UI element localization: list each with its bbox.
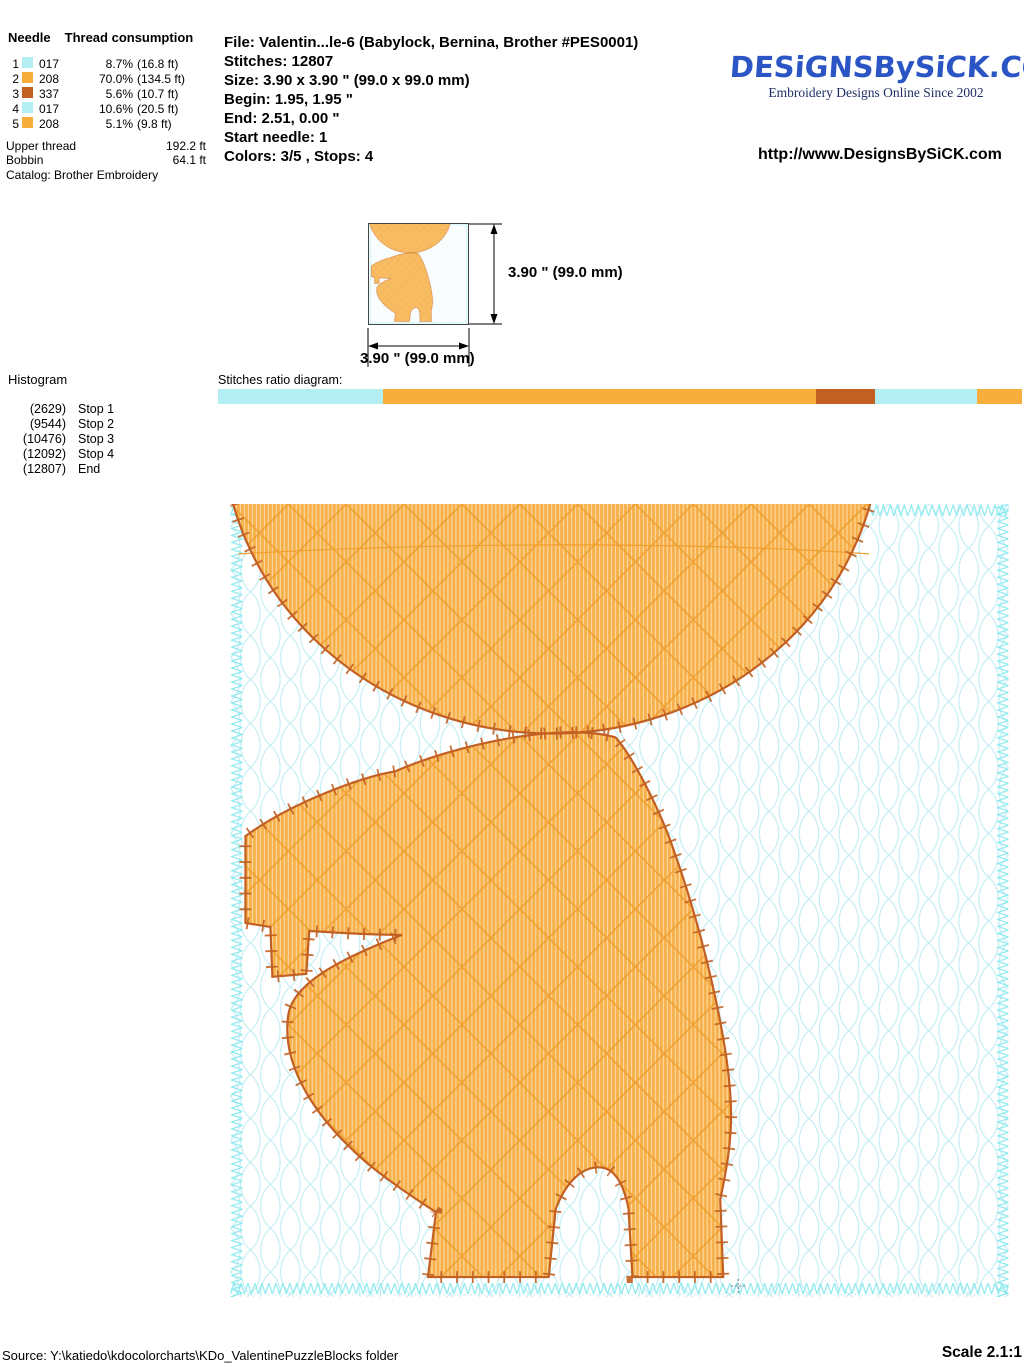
- stitch-count: (12807): [8, 462, 66, 476]
- thread-percent: 70.0%: [75, 72, 137, 86]
- thread-code: 208: [39, 117, 75, 131]
- design-thumbnail-art: [369, 224, 468, 324]
- ratio-segment: [218, 389, 383, 404]
- histogram-entry: (2629) Stop 1: [8, 401, 114, 416]
- histogram-entry: (9544) Stop 2: [8, 416, 114, 431]
- stitch-count: (9544): [8, 417, 66, 431]
- thread-color-swatch: [22, 117, 33, 128]
- stop-label: Stop 1: [78, 402, 114, 416]
- ratio-segment: [875, 389, 977, 404]
- thread-code: 017: [39, 57, 75, 71]
- brand-tagline: Embroidery Designs Online Since 2002: [730, 85, 1022, 101]
- file-info-block: File: Valentin...le-6 (Babylock, Bernina…: [224, 33, 638, 166]
- stitches-ratio-label: Stitches ratio diagram:: [218, 373, 342, 387]
- ratio-segment: [383, 389, 816, 404]
- thread-color-swatch: [22, 102, 33, 113]
- needle-number: 4: [6, 102, 22, 116]
- begin-line: Begin: 1.95, 1.95 ": [224, 90, 638, 109]
- thread-percent: 5.1%: [75, 117, 137, 131]
- file-name-line: File: Valentin...le-6 (Babylock, Bernina…: [224, 33, 638, 52]
- thread-row: 3 337 5.6% (10.7 ft): [6, 86, 220, 101]
- needle-column-header: Needle: [8, 30, 51, 45]
- histogram-entry: (10476) Stop 3: [8, 431, 114, 446]
- scale-indicator: Scale 2.1:1: [942, 1344, 1022, 1362]
- stitch-count: (10476): [8, 432, 66, 446]
- upper-thread-value: 192.2 ft: [166, 139, 206, 153]
- brand-url: http://www.DesignsBySiCK.com: [758, 146, 1002, 164]
- thread-row: 2 208 70.0% (134.5 ft): [6, 71, 220, 86]
- histogram-list: (2629) Stop 1 (9544) Stop 2 (10476) Stop…: [8, 401, 114, 476]
- source-path: Source: Y:\katiedo\kdocolorcharts\KDo_Va…: [2, 1348, 398, 1363]
- bobbin-label: Bobbin: [6, 153, 43, 167]
- stitch-count: (2629): [8, 402, 66, 416]
- stop-label: End: [78, 462, 100, 476]
- thread-length: (9.8 ft): [137, 117, 220, 131]
- catalog-line: Catalog: Brother Embroidery: [6, 168, 220, 182]
- upper-thread-label: Upper thread: [6, 139, 76, 153]
- colors-stops-line: Colors: 3/5 , Stops: 4: [224, 147, 638, 166]
- histogram-title: Histogram: [8, 372, 67, 387]
- start-needle-line: Start needle: 1: [224, 128, 638, 147]
- thread-length: (20.5 ft): [137, 102, 220, 116]
- consumption-column-header: Thread consumption: [65, 30, 194, 45]
- needle-number: 5: [6, 117, 22, 131]
- ratio-segment: [977, 389, 1022, 404]
- size-line: Size: 3.90 x 3.90 " (99.0 x 99.0 mm): [224, 71, 638, 90]
- histogram-entry: (12092) Stop 4: [8, 446, 114, 461]
- thread-length: (10.7 ft): [137, 87, 220, 101]
- histogram-entry: (12807) End: [8, 461, 114, 476]
- stitches-ratio-bar: [218, 389, 1022, 404]
- thread-length: (134.5 ft): [137, 72, 220, 86]
- needle-number: 3: [6, 87, 22, 101]
- thread-code: 208: [39, 72, 75, 86]
- needle-number: 1: [6, 57, 22, 71]
- designsbysick-logo: DESiGNSBySiCK.COM: [729, 50, 1023, 84]
- thread-row: 4 017 10.6% (20.5 ft): [6, 101, 220, 116]
- thread-color-swatch: [22, 72, 33, 83]
- stop-label: Stop 4: [78, 447, 114, 461]
- stitches-line: Stitches: 12807: [224, 52, 638, 71]
- thread-rows: 1 017 8.7% (16.8 ft) 2 208 70.0% (134.5 …: [6, 56, 220, 131]
- thread-consumption-table: Needle Thread consumption 1 017 8.7% (16…: [6, 30, 220, 182]
- needle-number: 2: [6, 72, 22, 86]
- bobbin-value: 64.1 ft: [173, 153, 206, 167]
- stop-label: Stop 2: [78, 417, 114, 431]
- design-thumbnail: [368, 223, 469, 325]
- stop-label: Stop 3: [78, 432, 114, 446]
- embroidery-design-art: [229, 504, 1010, 1297]
- ratio-segment: [816, 389, 875, 404]
- thread-length: (16.8 ft): [137, 57, 220, 71]
- width-dimension-label: 3.90 " (99.0 mm): [360, 350, 475, 367]
- thread-color-swatch: [22, 57, 33, 68]
- thread-row: 1 017 8.7% (16.8 ft): [6, 56, 220, 71]
- brand-block: DESiGNSBySiCK.COM Embroidery Designs Onl…: [730, 50, 1022, 101]
- height-dimension-label: 3.90 " (99.0 mm): [508, 264, 623, 281]
- design-preview: [229, 504, 1010, 1297]
- thread-percent: 10.6%: [75, 102, 137, 116]
- thread-code: 337: [39, 87, 75, 101]
- thread-percent: 5.6%: [75, 87, 137, 101]
- stitch-count: (12092): [8, 447, 66, 461]
- thread-percent: 8.7%: [75, 57, 137, 71]
- end-line: End: 2.51, 0.00 ": [224, 109, 638, 128]
- thread-code: 017: [39, 102, 75, 116]
- thread-color-swatch: [22, 87, 33, 98]
- thread-row: 5 208 5.1% (9.8 ft): [6, 116, 220, 131]
